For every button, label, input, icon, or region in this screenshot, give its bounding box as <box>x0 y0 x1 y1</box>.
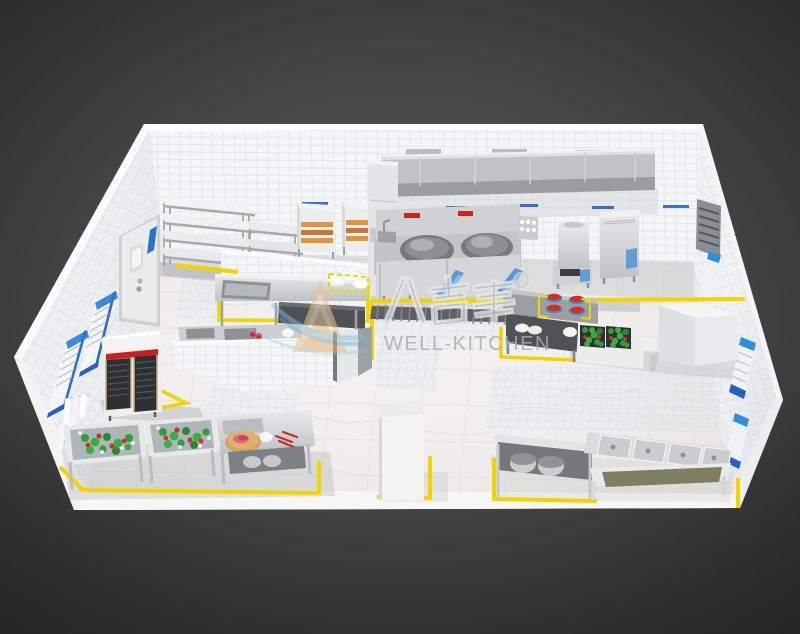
svg-text:R: R <box>518 276 525 286</box>
svg-text:WELL-KITCHEN: WELL-KITCHEN <box>384 333 551 355</box>
